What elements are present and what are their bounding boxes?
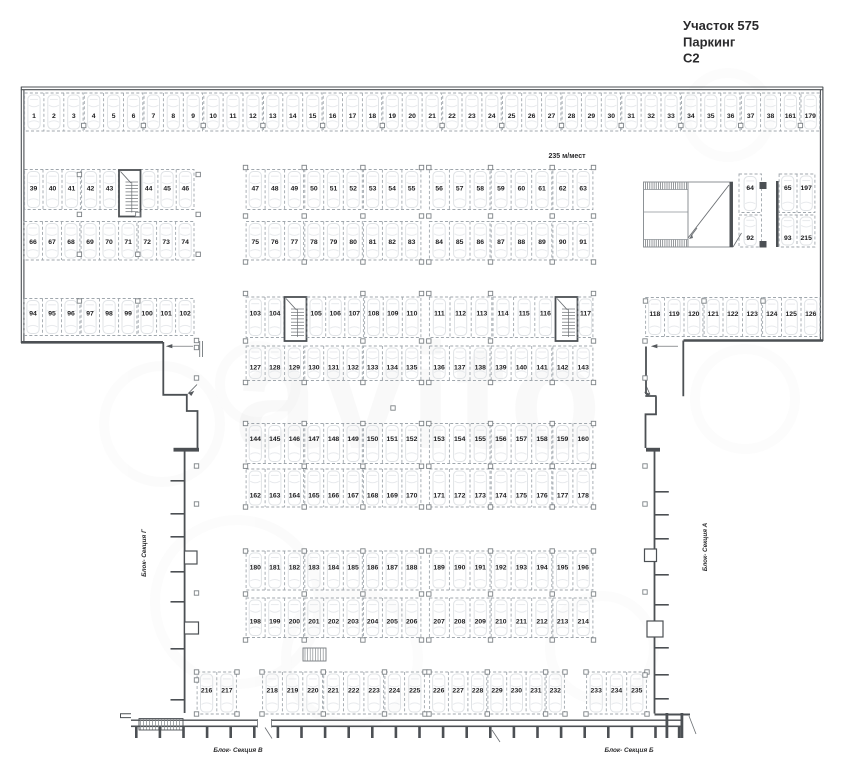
svg-text:169: 169 xyxy=(387,492,399,499)
svg-text:230: 230 xyxy=(511,687,523,694)
svg-text:48: 48 xyxy=(271,185,279,192)
svg-text:45: 45 xyxy=(163,185,171,192)
svg-text:97: 97 xyxy=(86,310,94,317)
svg-text:28: 28 xyxy=(568,113,576,120)
svg-text:229: 229 xyxy=(491,687,503,694)
svg-text:117: 117 xyxy=(580,310,591,317)
svg-text:17: 17 xyxy=(349,113,357,120)
svg-text:161: 161 xyxy=(785,113,797,120)
svg-text:27: 27 xyxy=(548,113,556,120)
svg-text:Блок- Секция А: Блок- Секция А xyxy=(702,522,709,571)
svg-text:92: 92 xyxy=(746,235,754,242)
svg-text:234: 234 xyxy=(611,687,623,694)
svg-text:233: 233 xyxy=(591,687,603,694)
svg-text:217: 217 xyxy=(221,687,233,694)
svg-text:100: 100 xyxy=(141,310,153,317)
svg-text:15: 15 xyxy=(309,113,317,120)
svg-text:26: 26 xyxy=(528,113,536,120)
svg-text:Блок- Секция Б: Блок- Секция Б xyxy=(604,747,654,754)
svg-text:193: 193 xyxy=(516,564,528,571)
svg-text:105: 105 xyxy=(310,310,322,317)
svg-text:94: 94 xyxy=(29,310,37,317)
svg-text:Участок 575: Участок 575 xyxy=(683,18,759,33)
svg-text:194: 194 xyxy=(536,564,548,571)
svg-text:44: 44 xyxy=(145,185,153,192)
svg-text:37: 37 xyxy=(747,113,755,120)
svg-text:188: 188 xyxy=(406,564,418,571)
svg-text:210: 210 xyxy=(495,618,507,625)
svg-text:111: 111 xyxy=(434,310,445,317)
svg-text:88: 88 xyxy=(518,239,526,246)
svg-text:32: 32 xyxy=(647,113,655,120)
svg-text:34: 34 xyxy=(687,113,695,120)
svg-text:19: 19 xyxy=(389,113,397,120)
svg-text:10: 10 xyxy=(209,113,217,120)
svg-text:89: 89 xyxy=(538,239,546,246)
svg-text:185: 185 xyxy=(347,564,359,571)
svg-text:106: 106 xyxy=(330,310,342,317)
svg-text:143: 143 xyxy=(578,364,590,371)
svg-text:178: 178 xyxy=(578,492,590,499)
svg-text:118: 118 xyxy=(649,311,660,318)
svg-text:16: 16 xyxy=(329,113,337,120)
svg-text:63: 63 xyxy=(579,185,587,192)
svg-text:174: 174 xyxy=(495,492,507,499)
svg-text:59: 59 xyxy=(497,185,505,192)
svg-text:129: 129 xyxy=(289,364,301,371)
svg-text:171: 171 xyxy=(433,492,445,499)
svg-text:162: 162 xyxy=(250,492,262,499)
svg-text:125: 125 xyxy=(786,311,798,318)
svg-text:109: 109 xyxy=(387,310,399,317)
svg-text:216: 216 xyxy=(201,687,213,694)
svg-text:107: 107 xyxy=(349,310,361,317)
svg-text:4: 4 xyxy=(92,113,96,120)
svg-text:189: 189 xyxy=(433,564,445,571)
svg-text:13: 13 xyxy=(269,113,277,120)
svg-text:67: 67 xyxy=(48,239,56,246)
svg-text:224: 224 xyxy=(389,687,401,694)
svg-text:200: 200 xyxy=(289,618,301,625)
svg-text:215: 215 xyxy=(801,235,813,242)
svg-text:170: 170 xyxy=(406,492,418,499)
svg-text:3: 3 xyxy=(72,113,76,120)
svg-text:213: 213 xyxy=(557,618,569,625)
svg-text:73: 73 xyxy=(162,239,170,246)
svg-text:192: 192 xyxy=(495,564,507,571)
svg-text:197: 197 xyxy=(801,185,813,192)
svg-text:148: 148 xyxy=(328,436,340,443)
svg-text:84: 84 xyxy=(435,239,443,246)
svg-text:23: 23 xyxy=(468,113,476,120)
svg-text:128: 128 xyxy=(269,364,281,371)
svg-text:141: 141 xyxy=(536,364,548,371)
svg-text:166: 166 xyxy=(328,492,340,499)
svg-text:49: 49 xyxy=(291,185,299,192)
svg-text:18: 18 xyxy=(369,113,377,120)
svg-text:77: 77 xyxy=(291,239,299,246)
svg-text:165: 165 xyxy=(308,492,320,499)
svg-text:Паркинг: Паркинг xyxy=(683,35,736,50)
svg-text:75: 75 xyxy=(252,239,260,246)
svg-text:24: 24 xyxy=(488,113,496,120)
svg-text:199: 199 xyxy=(269,618,281,625)
svg-text:227: 227 xyxy=(452,687,464,694)
svg-text:Блок- Секция Г: Блок- Секция Г xyxy=(141,528,148,577)
svg-text:151: 151 xyxy=(387,436,399,443)
svg-text:39: 39 xyxy=(30,185,38,192)
svg-text:186: 186 xyxy=(367,564,379,571)
svg-text:124: 124 xyxy=(766,311,778,318)
svg-text:121: 121 xyxy=(708,311,720,318)
svg-text:150: 150 xyxy=(367,436,379,443)
svg-text:55: 55 xyxy=(408,185,416,192)
svg-text:145: 145 xyxy=(269,436,281,443)
svg-text:168: 168 xyxy=(367,492,379,499)
svg-text:46: 46 xyxy=(182,185,190,192)
svg-text:54: 54 xyxy=(388,185,396,192)
svg-text:6: 6 xyxy=(132,113,136,120)
svg-text:65: 65 xyxy=(784,185,792,192)
svg-text:181: 181 xyxy=(269,564,281,571)
svg-text:134: 134 xyxy=(387,364,399,371)
svg-text:120: 120 xyxy=(688,311,700,318)
svg-text:79: 79 xyxy=(330,239,338,246)
svg-text:68: 68 xyxy=(67,239,75,246)
svg-text:11: 11 xyxy=(229,113,236,120)
svg-text:232: 232 xyxy=(550,687,562,694)
svg-text:130: 130 xyxy=(308,364,320,371)
svg-text:119: 119 xyxy=(669,311,680,318)
svg-text:220: 220 xyxy=(307,687,319,694)
svg-text:167: 167 xyxy=(347,492,359,499)
svg-text:С2: С2 xyxy=(683,51,700,66)
svg-text:135: 135 xyxy=(406,364,418,371)
svg-text:101: 101 xyxy=(160,310,172,317)
svg-text:116: 116 xyxy=(540,310,551,317)
svg-text:140: 140 xyxy=(516,364,528,371)
svg-text:184: 184 xyxy=(328,564,340,571)
svg-text:33: 33 xyxy=(667,113,675,120)
svg-text:5: 5 xyxy=(112,113,116,120)
svg-text:180: 180 xyxy=(250,564,262,571)
svg-text:36: 36 xyxy=(727,113,735,120)
svg-text:60: 60 xyxy=(518,185,526,192)
svg-text:76: 76 xyxy=(271,239,279,246)
svg-text:40: 40 xyxy=(49,185,57,192)
svg-text:78: 78 xyxy=(310,239,318,246)
svg-text:214: 214 xyxy=(578,618,590,625)
svg-text:2: 2 xyxy=(52,113,56,120)
svg-text:203: 203 xyxy=(347,618,359,625)
svg-text:153: 153 xyxy=(433,436,445,443)
svg-text:Блок- Секция В: Блок- Секция В xyxy=(213,747,263,754)
svg-text:179: 179 xyxy=(805,113,817,120)
svg-text:132: 132 xyxy=(347,364,359,371)
svg-text:29: 29 xyxy=(588,113,596,120)
svg-text:211: 211 xyxy=(516,618,527,625)
svg-text:99: 99 xyxy=(124,310,132,317)
svg-text:223: 223 xyxy=(368,687,380,694)
svg-text:131: 131 xyxy=(328,364,340,371)
svg-text:164: 164 xyxy=(289,492,301,499)
svg-text:69: 69 xyxy=(86,239,94,246)
svg-text:7: 7 xyxy=(152,113,156,120)
svg-text:66: 66 xyxy=(29,239,37,246)
svg-text:96: 96 xyxy=(67,310,75,317)
svg-text:47: 47 xyxy=(252,185,260,192)
svg-text:209: 209 xyxy=(475,618,487,625)
svg-text:159: 159 xyxy=(557,436,569,443)
svg-text:90: 90 xyxy=(559,239,567,246)
svg-text:172: 172 xyxy=(454,492,466,499)
svg-text:8: 8 xyxy=(171,113,175,120)
svg-text:38: 38 xyxy=(767,113,775,120)
svg-text:149: 149 xyxy=(347,436,359,443)
svg-text:205: 205 xyxy=(387,618,399,625)
svg-text:218: 218 xyxy=(267,687,279,694)
svg-text:219: 219 xyxy=(287,687,299,694)
svg-text:91: 91 xyxy=(579,239,587,246)
svg-text:133: 133 xyxy=(367,364,379,371)
svg-text:127: 127 xyxy=(250,364,262,371)
svg-text:177: 177 xyxy=(557,492,569,499)
svg-text:85: 85 xyxy=(456,239,464,246)
svg-text:104: 104 xyxy=(269,310,281,317)
svg-text:198: 198 xyxy=(250,618,262,625)
svg-text:122: 122 xyxy=(727,311,739,318)
svg-text:43: 43 xyxy=(106,185,114,192)
svg-text:235: 235 xyxy=(631,687,643,694)
svg-text:41: 41 xyxy=(68,185,76,192)
svg-text:42: 42 xyxy=(87,185,95,192)
svg-text:137: 137 xyxy=(454,364,466,371)
svg-text:136: 136 xyxy=(433,364,445,371)
svg-text:14: 14 xyxy=(289,113,297,120)
svg-text:64: 64 xyxy=(746,185,754,192)
svg-text:98: 98 xyxy=(105,310,113,317)
svg-text:191: 191 xyxy=(475,564,487,571)
svg-text:83: 83 xyxy=(408,239,416,246)
svg-text:222: 222 xyxy=(348,687,360,694)
svg-text:56: 56 xyxy=(435,185,443,192)
svg-text:158: 158 xyxy=(536,436,548,443)
svg-text:231: 231 xyxy=(530,687,542,694)
svg-text:115: 115 xyxy=(519,310,530,317)
svg-text:152: 152 xyxy=(406,436,418,443)
svg-text:142: 142 xyxy=(557,364,569,371)
svg-text:62: 62 xyxy=(559,185,567,192)
svg-text:147: 147 xyxy=(308,436,320,443)
svg-text:87: 87 xyxy=(497,239,505,246)
svg-text:20: 20 xyxy=(408,113,416,120)
svg-text:126: 126 xyxy=(805,311,817,318)
svg-text:35: 35 xyxy=(707,113,715,120)
svg-text:21: 21 xyxy=(428,113,436,120)
svg-text:9: 9 xyxy=(191,113,195,120)
svg-text:207: 207 xyxy=(433,618,445,625)
svg-text:57: 57 xyxy=(456,185,464,192)
svg-text:80: 80 xyxy=(349,239,357,246)
svg-text:30: 30 xyxy=(608,113,616,120)
svg-text:50: 50 xyxy=(310,185,318,192)
svg-text:53: 53 xyxy=(369,185,377,192)
svg-text:58: 58 xyxy=(477,185,485,192)
svg-text:144: 144 xyxy=(250,436,262,443)
svg-text:86: 86 xyxy=(477,239,485,246)
svg-text:139: 139 xyxy=(495,364,507,371)
svg-text:155: 155 xyxy=(475,436,487,443)
svg-text:163: 163 xyxy=(269,492,281,499)
svg-text:102: 102 xyxy=(179,310,191,317)
svg-text:70: 70 xyxy=(105,239,113,246)
svg-text:187: 187 xyxy=(387,564,399,571)
svg-text:108: 108 xyxy=(368,310,380,317)
svg-text:110: 110 xyxy=(406,310,417,317)
svg-text:182: 182 xyxy=(289,564,301,571)
svg-text:72: 72 xyxy=(143,239,151,246)
svg-text:112: 112 xyxy=(455,310,466,317)
svg-text:173: 173 xyxy=(475,492,487,499)
svg-text:74: 74 xyxy=(181,239,189,246)
svg-text:123: 123 xyxy=(747,311,759,318)
svg-text:196: 196 xyxy=(578,564,590,571)
svg-text:212: 212 xyxy=(536,618,548,625)
svg-text:146: 146 xyxy=(289,436,301,443)
svg-text:61: 61 xyxy=(538,185,546,192)
svg-text:190: 190 xyxy=(454,564,466,571)
svg-text:52: 52 xyxy=(349,185,357,192)
svg-text:156: 156 xyxy=(495,436,507,443)
svg-text:228: 228 xyxy=(472,687,484,694)
svg-text:1: 1 xyxy=(32,113,36,120)
svg-text:176: 176 xyxy=(536,492,548,499)
svg-text:31: 31 xyxy=(627,113,635,120)
svg-text:103: 103 xyxy=(250,310,262,317)
svg-text:221: 221 xyxy=(328,687,340,694)
svg-text:183: 183 xyxy=(308,564,320,571)
svg-text:175: 175 xyxy=(516,492,528,499)
svg-text:95: 95 xyxy=(48,310,56,317)
svg-text:154: 154 xyxy=(454,436,466,443)
svg-text:113: 113 xyxy=(476,310,487,317)
svg-text:93: 93 xyxy=(784,235,792,242)
svg-text:206: 206 xyxy=(406,618,418,625)
svg-text:71: 71 xyxy=(124,239,132,246)
svg-text:201: 201 xyxy=(308,618,320,625)
svg-text:138: 138 xyxy=(475,364,487,371)
svg-text:160: 160 xyxy=(578,436,590,443)
svg-text:226: 226 xyxy=(433,687,445,694)
svg-text:225: 225 xyxy=(409,687,421,694)
svg-text:22: 22 xyxy=(448,113,456,120)
svg-text:51: 51 xyxy=(330,185,338,192)
svg-text:82: 82 xyxy=(388,239,396,246)
svg-text:195: 195 xyxy=(557,564,569,571)
svg-text:12: 12 xyxy=(249,113,257,120)
svg-text:25: 25 xyxy=(508,113,516,120)
svg-text:114: 114 xyxy=(498,310,509,317)
svg-text:157: 157 xyxy=(516,436,528,443)
svg-text:235 м/мест: 235 м/мест xyxy=(548,153,586,160)
svg-text:81: 81 xyxy=(369,239,377,246)
svg-text:204: 204 xyxy=(367,618,379,625)
svg-text:202: 202 xyxy=(328,618,340,625)
svg-text:208: 208 xyxy=(454,618,466,625)
